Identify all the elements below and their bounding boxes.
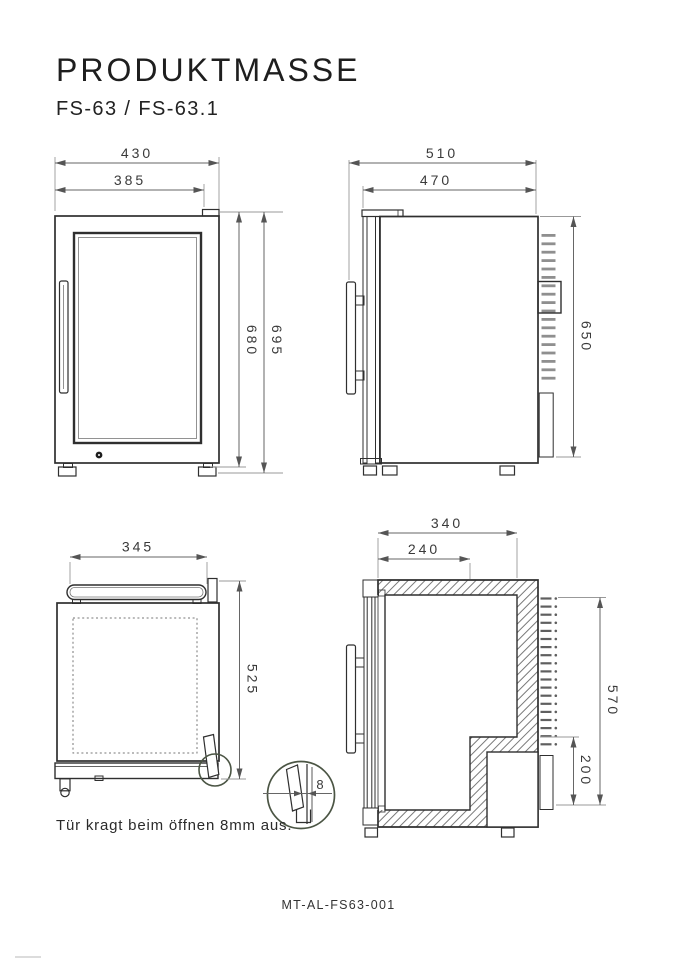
dim-top-depth: 525	[245, 664, 261, 696]
produktmasse-sheet: PRODUKTMASSE FS-63 / FS-63.1 430 385	[0, 0, 677, 960]
door-overhang-note: Tür kragt beim öffnen 8mm aus.	[56, 817, 292, 834]
dim-front-height-body: 680	[244, 325, 260, 357]
dim-top-handle-width: 345	[122, 539, 154, 555]
hinge-cap	[203, 210, 220, 217]
dim-side-height-body: 650	[579, 321, 595, 353]
dim-front-height-total: 695	[269, 325, 285, 357]
dim-section-height-compressor: 200	[578, 755, 594, 787]
interior-dashed-outline	[73, 618, 197, 753]
section-view-drawing: 340 240	[347, 515, 622, 837]
dim-section-depth-bottom: 240	[408, 541, 440, 557]
door-section-top-block	[363, 580, 378, 597]
document-code: MT-AL-FS63-001	[0, 898, 677, 912]
dim-section-height-interior: 570	[605, 685, 621, 717]
top-view-drawing: 345 525	[55, 539, 261, 797]
dim-section-depth-top: 340	[431, 515, 463, 531]
compressor-recess	[539, 393, 553, 457]
page-edge-artifact	[15, 956, 41, 958]
glass-door-frame	[74, 233, 201, 443]
foot-left	[59, 467, 77, 476]
body-top-view	[57, 603, 219, 761]
top-hinge-plate	[362, 210, 403, 217]
dim-side-depth-total: 510	[426, 145, 458, 161]
side-view-drawing: 510 470	[347, 145, 595, 475]
cabinet-body	[380, 217, 538, 464]
compressor-compartment	[487, 752, 538, 827]
compressor-back-outline	[540, 756, 553, 810]
door-section-bottom-block	[363, 808, 378, 825]
dim-detail-overhang: 8	[316, 777, 323, 792]
technical-drawing: 430 385 680 695	[0, 0, 677, 960]
vent-slots	[542, 234, 556, 380]
hinge-pin	[208, 579, 217, 603]
caster-foot	[60, 779, 70, 791]
condenser-coil	[541, 597, 558, 745]
front-view-drawing: 430 385 680 695	[55, 145, 285, 476]
section-handle	[347, 645, 356, 753]
foot-right	[199, 467, 217, 476]
dim-front-width-total: 430	[121, 145, 153, 161]
door-front-edge	[55, 763, 218, 779]
side-handle	[347, 282, 356, 394]
dim-side-depth-body: 470	[420, 172, 452, 188]
door-edge	[363, 217, 367, 464]
dim-front-width-door: 385	[114, 172, 146, 188]
